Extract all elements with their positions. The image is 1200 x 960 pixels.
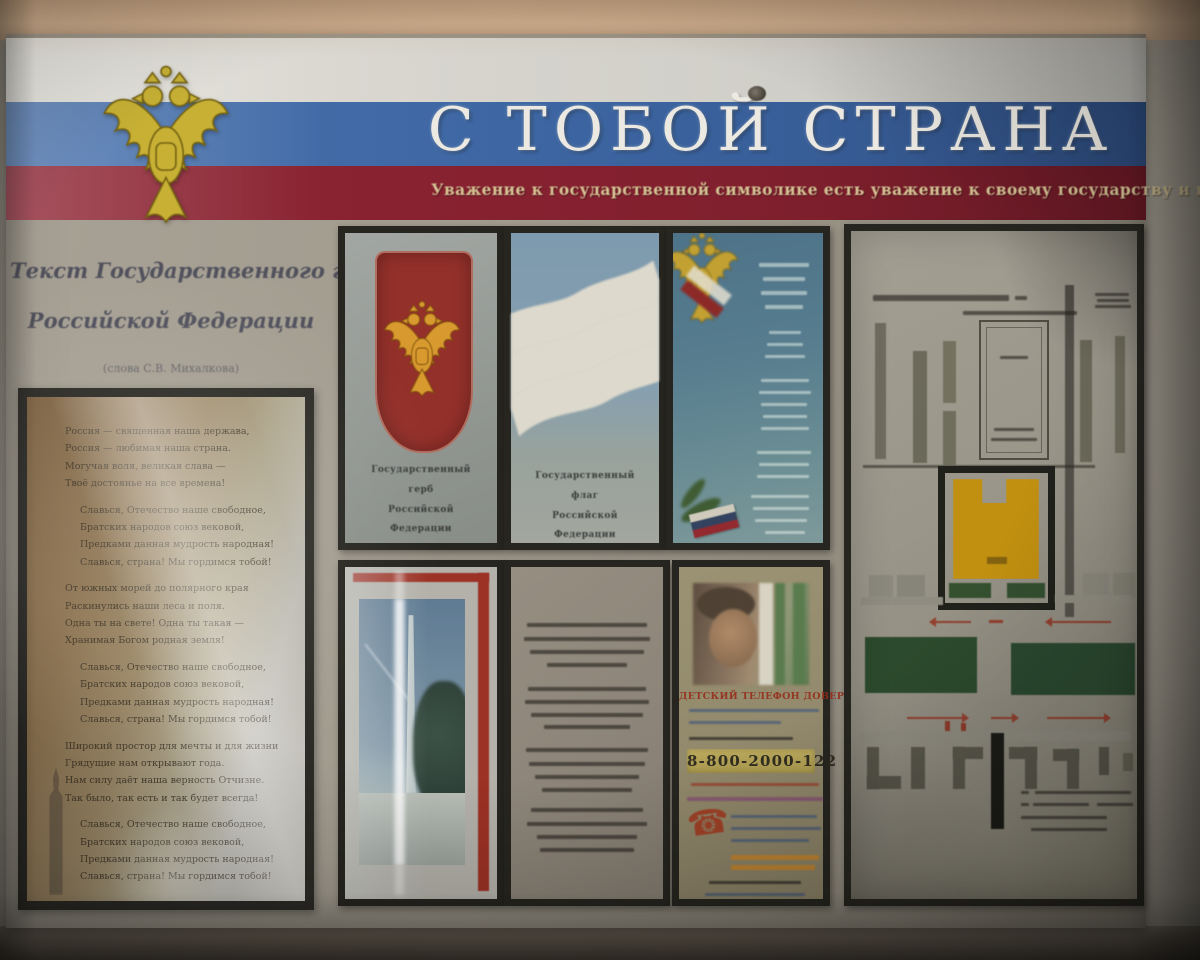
anthem-line: Предками данная мудрость народная! — [80, 536, 297, 553]
photo-green-stripe — [793, 583, 805, 685]
child-photo — [693, 583, 809, 685]
blurred-text-line — [753, 507, 809, 510]
plan-building-bar — [1080, 340, 1092, 462]
blurred-text-line — [757, 451, 811, 454]
arrow-tick — [989, 620, 1003, 623]
anthem-blue-poster — [666, 226, 830, 550]
blurred-text-line — [755, 519, 807, 522]
blurred-text-line — [1021, 791, 1029, 794]
eagle-svg — [92, 44, 240, 242]
blurred-text-line — [1035, 791, 1131, 794]
flag-poster: ГосударственныйфлагРоссийскойФедерации — [504, 226, 666, 550]
right-arrow — [991, 717, 1017, 719]
russia-coat-of-arms-emblem — [92, 44, 240, 242]
left-arrow — [1047, 621, 1111, 623]
child-face — [709, 609, 757, 667]
anthem-line: Предками данная мудрость народная! — [80, 694, 297, 711]
blurred-text-line — [1031, 828, 1107, 831]
plan-block — [953, 747, 983, 759]
plan-block — [867, 776, 901, 789]
blurred-text-line — [529, 762, 645, 766]
blurred-text-line — [763, 277, 805, 281]
helpline-heading: ДЕТСКИЙ ТЕЛЕФОН ДОВЕРИЯ — [679, 691, 823, 702]
blurred-text-line — [709, 881, 801, 884]
anthem-line: Братских народов союз вековой, — [80, 519, 297, 536]
plan-building-bar — [875, 323, 886, 459]
anthem-line: Широкий простор для мечты и для жизни — [65, 738, 297, 755]
anthem-line: Славься, страна! Мы гордимся тобой! — [80, 554, 297, 571]
poster-caption-line: Российской — [511, 507, 659, 527]
plan-block — [1067, 749, 1079, 789]
anthem-line: Одна ты на свете! Одна ты такая — — [65, 615, 297, 632]
anthem-text: Россия — священная наша держава,Россия —… — [27, 397, 305, 901]
blurred-text-line — [542, 788, 632, 792]
right-arrow — [1047, 717, 1109, 719]
phone-number-bar: 8-800-2000-122 — [687, 749, 815, 773]
blurred-text-line — [731, 839, 809, 842]
anthem-chorus: Славься, Отечество наше свободное,Братск… — [80, 816, 297, 886]
anthem-line: Славься, страна! Мы гордимся тобой! — [80, 711, 297, 728]
poster-caption-line: Государственный — [511, 467, 659, 487]
blurred-text-line — [525, 700, 649, 704]
blurred-text-line — [531, 713, 643, 717]
blurred-text-line — [528, 687, 646, 691]
plan-central-rectangle — [979, 320, 1049, 460]
anthem-verse: От южных морей до полярного краяРаскинул… — [65, 580, 297, 650]
blurred-text-line — [765, 355, 805, 358]
blurred-text-line — [731, 865, 815, 870]
blurred-text-line — [531, 808, 643, 812]
plan-black-bar — [991, 733, 1004, 829]
blurred-text-line — [689, 721, 781, 724]
blurred-text-line — [1095, 293, 1129, 296]
photo-green-stripe — [775, 583, 785, 685]
anthem-heading-line2: Российской Федерации — [10, 308, 332, 333]
blurred-text-line — [769, 331, 801, 334]
plan-lawn-rectangle — [865, 637, 977, 693]
plan-green-strip — [1007, 583, 1045, 598]
blurred-text-line — [1095, 305, 1131, 308]
blurred-text-line — [689, 709, 819, 712]
monument-photo-poster — [338, 560, 504, 906]
plan-path-band — [861, 597, 943, 605]
anthem-verse: Широкий простор для мечты и для жизниГря… — [65, 738, 297, 808]
blurred-text-line — [527, 623, 647, 627]
poster-caption: ГосударственныйгербРоссийскойФедерации — [345, 461, 497, 540]
blurred-text-line — [761, 291, 807, 295]
territory-plan-panel — [844, 224, 1144, 906]
poster-caption-line: герб — [345, 481, 497, 501]
glass-glare-streak — [395, 571, 404, 895]
blurred-text-line — [765, 531, 805, 534]
blurred-text-line — [535, 775, 639, 779]
anthem-line: Могучая воля, великая слава — — [65, 458, 297, 475]
anthem-line: Славься, Отечество наше свободное, — [80, 502, 297, 519]
blurred-text-line — [1097, 803, 1133, 806]
anthem-heading-line1: Текст Государственного гимна — [10, 258, 332, 283]
shield-eagle-svg — [377, 263, 467, 433]
anthem-line: Славься, Отечество наше свободное, — [80, 816, 297, 833]
poster-caption: ГосударственныйфлагРоссийскойФедерации — [511, 467, 659, 546]
photo-light-column — [759, 583, 773, 685]
wall-below-board — [0, 926, 1200, 960]
blurred-text-line — [761, 403, 807, 406]
plan-block — [911, 747, 925, 789]
waving-flag-svg — [511, 241, 659, 469]
anthem-line: Славься, страна! Мы гордимся тобой! — [80, 868, 297, 885]
photo-of-information-stand: С ТОБОЙ СТРАНА Уважение к государственно… — [0, 0, 1200, 960]
anthem-line: Россия — любимая наша страна. — [65, 440, 297, 457]
blurred-text-line — [761, 379, 809, 382]
blurred-text-line — [689, 737, 793, 740]
plan-building-mark — [987, 557, 1007, 564]
anthem-line: Братских народов союз вековой, — [80, 676, 297, 693]
blurred-text-line — [763, 415, 807, 418]
helpline-poster: ДЕТСКИЙ ТЕЛЕФОН ДОВЕРИЯ 8-800-2000-122 ☎ — [672, 560, 830, 906]
plan-vertical-bar — [1065, 285, 1074, 617]
board-subtitle: Уважение к государственной символике ест… — [431, 180, 1131, 199]
left-arrow — [931, 621, 971, 623]
plan-green-strip — [949, 583, 991, 598]
red-heraldic-shield — [375, 251, 473, 453]
blurred-text-line — [731, 815, 817, 818]
anthem-line: Так было, так есть и так будет всегда! — [65, 790, 297, 807]
poem-poster — [504, 560, 670, 906]
blurred-text-line — [527, 822, 647, 826]
anthem-line: Раскинулись наши леса и поля. — [65, 598, 297, 615]
anthem-line: Твоё достоянье на все времена! — [65, 475, 297, 492]
plan-lawn-rectangle — [1011, 643, 1135, 695]
plan-gray-block — [1083, 573, 1109, 597]
poster-caption-line: Российской — [345, 501, 497, 521]
plan-gray-block — [897, 575, 925, 597]
plan-block — [1025, 747, 1037, 789]
plan-gray-block — [1113, 573, 1135, 597]
blurred-text-line — [994, 428, 1034, 431]
blurred-text-line — [1015, 296, 1027, 300]
plan-path-band — [1055, 595, 1133, 603]
plan-building-bar — [943, 411, 956, 465]
blurred-text-line — [537, 835, 637, 839]
blurred-text-line — [765, 305, 803, 309]
blurred-text-line — [1033, 803, 1089, 806]
blurred-text-line — [526, 748, 648, 752]
poster-caption-line: флаг — [511, 487, 659, 507]
plan-gray-block — [869, 575, 893, 597]
blurred-text-line — [759, 463, 809, 466]
anthem-line: Славься, Отечество наше свободное, — [80, 659, 297, 676]
poster-caption-line: Федерации — [511, 526, 659, 546]
blurred-text-line — [530, 650, 644, 654]
plan-building-bar — [943, 341, 956, 403]
anthem-line: Хранимая Богом родная земля! — [65, 632, 297, 649]
poster-corner-art — [673, 233, 747, 333]
helpline-phone-number: 8-800-2000-122 — [687, 749, 815, 773]
anthem-line: Нам силу даёт наша верность Отчизне. — [65, 772, 297, 789]
blurred-text-line — [757, 475, 809, 478]
blurred-text-line — [540, 848, 634, 852]
blurred-text-line — [547, 663, 627, 667]
blurred-text-line — [691, 783, 819, 786]
photo-haze-overlay — [345, 567, 497, 899]
blurred-text-line — [687, 797, 823, 801]
blurred-text-line — [705, 893, 805, 896]
anthem-author-note: (слова С.В. Михалкова) — [10, 362, 332, 375]
blurred-text-line — [731, 855, 819, 860]
blurred-text-line — [544, 725, 630, 729]
fastener-dot — [748, 86, 766, 101]
plan-block — [1123, 753, 1133, 771]
board-title: С ТОБОЙ СТРАНА — [426, 94, 1116, 166]
anthem-line: Предками данная мудрость народная! — [80, 851, 297, 868]
blurred-text-line — [767, 343, 803, 346]
poster-caption-line: Государственный — [345, 461, 497, 481]
blurred-text-line — [759, 391, 811, 394]
anthem-verse: Россия — священная наша держава,Россия —… — [65, 423, 297, 493]
plan-block — [1099, 747, 1109, 775]
blurred-text-line — [991, 438, 1037, 441]
poster-caption-line: Федерации — [345, 520, 497, 540]
information-board: С ТОБОЙ СТРАНА Уважение к государственно… — [6, 34, 1146, 928]
blurred-text-line — [873, 295, 1009, 301]
coat-of-arms-poster: ГосударственныйгербРоссийскойФедерации — [338, 226, 504, 550]
blurred-text-line — [524, 637, 650, 641]
blurred-text-line — [963, 311, 1077, 315]
blurred-text-line — [1021, 803, 1029, 806]
blurred-text-line — [761, 427, 809, 430]
blurred-text-line — [1000, 356, 1028, 359]
anthem-line: Братских народов союз вековой, — [80, 834, 297, 851]
anthem-chorus: Славься, Отечество наше свободное,Братск… — [80, 502, 297, 572]
anthem-line: От южных морей до полярного края — [65, 580, 297, 597]
blurred-text-line — [1021, 816, 1107, 819]
right-arrow — [907, 717, 967, 719]
blurred-text-line — [1097, 299, 1129, 302]
blurred-text-line — [751, 495, 809, 498]
plan-building-bar — [1115, 336, 1125, 453]
plan-building-bar — [913, 351, 927, 463]
blurred-text-line — [731, 827, 821, 830]
anthem-framed-poster: Россия — священная наша держава,Россия —… — [18, 388, 314, 910]
telephone-icon: ☎ — [684, 800, 732, 846]
anthem-line: Грядущие нам открывают года. — [65, 755, 297, 772]
blurred-text-line — [759, 263, 809, 267]
anthem-chorus: Славься, Отечество наше свободное,Братск… — [80, 659, 297, 729]
anthem-line: Россия — священная наша держава, — [65, 423, 297, 440]
